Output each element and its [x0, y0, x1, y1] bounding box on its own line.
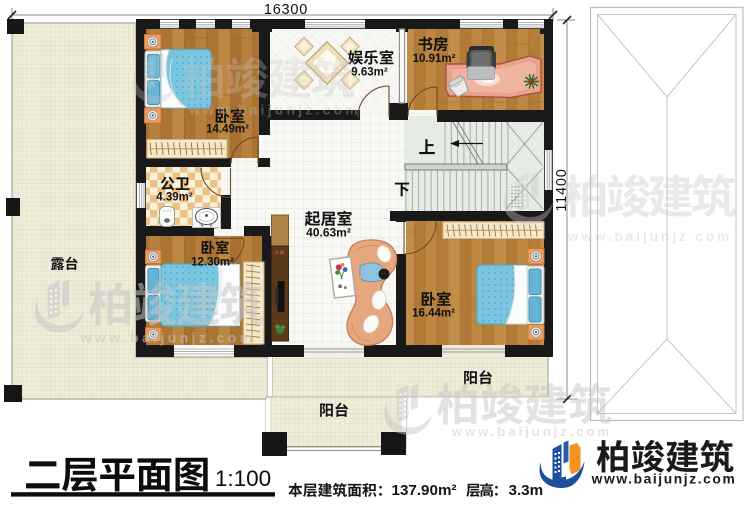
svg-text:1:100: 1:100	[215, 466, 271, 491]
svg-text:www.baijunjz.com: www.baijunjz.com	[79, 329, 255, 345]
svg-text:16.44m²: 16.44m²	[412, 308, 455, 320]
svg-text:12.30m²: 12.30m²	[191, 257, 234, 269]
svg-text:14.49m²: 14.49m²	[206, 124, 249, 136]
svg-text:www.baijunjz.com: www.baijunjz.com	[188, 101, 361, 117]
svg-text:www.baijunjz.com: www.baijunjz.com	[451, 424, 612, 439]
svg-text:4.39m²: 4.39m²	[156, 192, 193, 204]
svg-text:137.90m²: 137.90m²	[392, 482, 457, 499]
svg-text:www.baijunjz.com: www.baijunjz.com	[567, 229, 733, 244]
svg-text:40.63m²: 40.63m²	[306, 226, 351, 240]
svg-text:10.91m²: 10.91m²	[413, 53, 456, 65]
svg-text:3.3m: 3.3m	[509, 482, 544, 499]
svg-text:9.63m²: 9.63m²	[351, 67, 388, 79]
svg-text:www.baijunjz.com: www.baijunjz.com	[591, 471, 737, 486]
svg-text:16300: 16300	[264, 2, 308, 18]
